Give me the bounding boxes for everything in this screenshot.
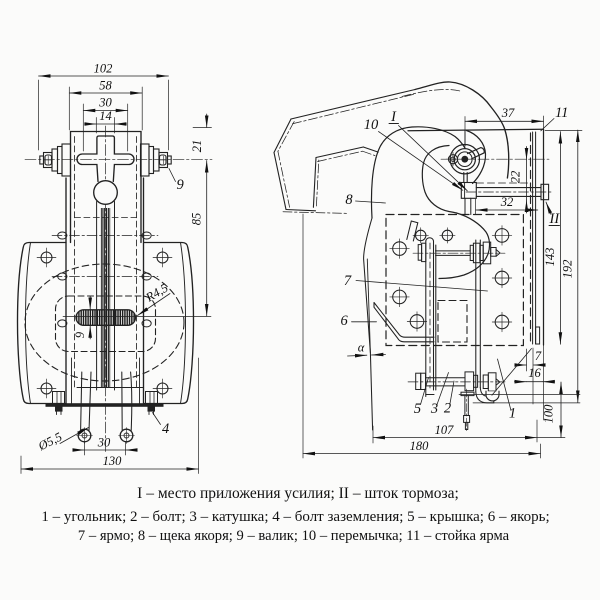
svg-text:I – место приложения усилия; I: I – место приложения усилия; II – шток т… bbox=[137, 485, 459, 502]
svg-text:7 – ярмо; 8 – щека якоря; 9 –: 7 – ярмо; 8 – щека якоря; 9 – валик; 10 … bbox=[78, 528, 510, 544]
svg-text:I: I bbox=[390, 109, 397, 125]
svg-text:32: 32 bbox=[500, 195, 514, 209]
svg-text:Ø5,5: Ø5,5 bbox=[35, 430, 64, 454]
svg-text:16: 16 bbox=[528, 366, 541, 380]
svg-text:4: 4 bbox=[162, 421, 169, 437]
svg-text:102: 102 bbox=[94, 62, 113, 76]
svg-text:10: 10 bbox=[364, 117, 379, 133]
svg-text:7: 7 bbox=[535, 349, 542, 363]
svg-text:3: 3 bbox=[430, 401, 438, 417]
svg-text:130: 130 bbox=[103, 454, 123, 468]
svg-text:1: 1 bbox=[509, 406, 516, 422]
svg-text:37: 37 bbox=[501, 106, 515, 120]
svg-text:143: 143 bbox=[543, 248, 557, 267]
svg-text:α: α bbox=[358, 341, 365, 355]
svg-text:14: 14 bbox=[99, 109, 112, 123]
svg-text:30: 30 bbox=[98, 96, 112, 110]
svg-text:II: II bbox=[549, 211, 561, 227]
svg-text:22: 22 bbox=[509, 171, 523, 184]
svg-text:7: 7 bbox=[344, 273, 352, 289]
svg-text:58: 58 bbox=[99, 79, 112, 93]
svg-text:8: 8 bbox=[345, 192, 353, 208]
svg-text:6: 6 bbox=[341, 313, 349, 329]
svg-text:R4,5: R4,5 bbox=[143, 281, 171, 305]
svg-text:5: 5 bbox=[414, 401, 421, 417]
svg-text:107: 107 bbox=[435, 423, 455, 437]
svg-text:9: 9 bbox=[73, 331, 87, 338]
svg-text:21: 21 bbox=[190, 140, 204, 153]
svg-text:192: 192 bbox=[561, 260, 575, 279]
svg-text:85: 85 bbox=[190, 213, 204, 226]
svg-text:9: 9 bbox=[177, 177, 185, 193]
svg-text:30: 30 bbox=[97, 436, 111, 450]
svg-text:180: 180 bbox=[410, 439, 430, 453]
svg-text:100: 100 bbox=[542, 404, 556, 424]
svg-text:2: 2 bbox=[444, 401, 451, 417]
svg-text:11: 11 bbox=[555, 105, 568, 121]
svg-text:1 – угольник; 2 – болт; 3 – ка: 1 – угольник; 2 – болт; 3 – катушка; 4 –… bbox=[41, 509, 549, 525]
